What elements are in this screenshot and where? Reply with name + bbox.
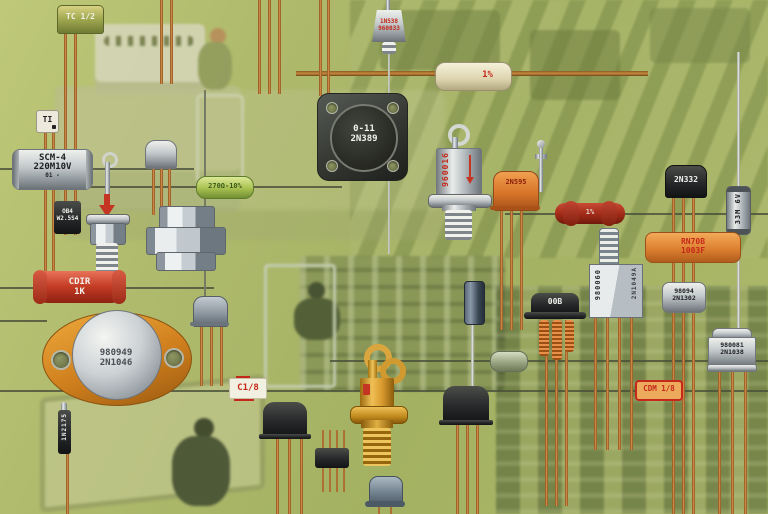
lead [630, 314, 633, 450]
stud-rectifier-left [84, 150, 130, 276]
lead [500, 210, 503, 330]
wire-wound-sleeve [539, 320, 549, 356]
rn70b-line2: 1003F [646, 246, 740, 255]
lead [520, 210, 523, 330]
contact-pin [533, 140, 549, 192]
cdir-resistor: CDIR 1K [33, 271, 126, 303]
diode-1n2175: 1N2175 [57, 402, 72, 454]
lead [170, 0, 173, 84]
lead [718, 368, 721, 514]
power-transistor-to3: 980949 2N1046 [42, 308, 192, 408]
can-2n1038-line2: 2N1038 [709, 349, 755, 356]
scm4-line3: 01 - [13, 173, 92, 179]
lead [220, 322, 223, 386]
lead [456, 424, 459, 514]
ob4-line2: W2.5S4 [54, 215, 81, 222]
rod [471, 320, 474, 390]
stud-diode-center-label: 960016 [441, 152, 450, 187]
lead [268, 0, 271, 94]
power-transistor-line1: 980949 [80, 348, 152, 358]
glass-diode-33m6v: 33M 6V [726, 186, 751, 235]
lead [378, 506, 380, 514]
transistor-2n332-label: 2N332 [666, 175, 706, 184]
square-transistor-line2: 2N389 [332, 134, 396, 144]
lead [327, 0, 330, 96]
lead [466, 424, 469, 514]
orange-transistor-brim [490, 206, 540, 210]
diode-1n2175-label: 1N2175 [61, 413, 68, 441]
tc-can-transistor: TC 1/2 [57, 5, 104, 34]
stud-diode-1n538: 1N538 960033 [370, 0, 408, 56]
rn70b-line1: RN70B [646, 237, 740, 246]
green-resistor-label: 270Ω-10% [197, 182, 253, 190]
can-transistor-2n1038: 980081 2N1038 [707, 328, 755, 372]
lead [200, 322, 203, 386]
lead [744, 368, 747, 514]
stud-diode-960016: 960016 [426, 124, 492, 240]
lead [300, 436, 303, 514]
metal-cube-right-label: 2N1049A [631, 267, 638, 299]
stud-diode-top-line2: 960033 [372, 25, 406, 32]
axial-component [490, 351, 528, 372]
lead [594, 314, 597, 450]
hex-nut-stack [146, 206, 226, 270]
label-cdm18: CDM 1/8 [635, 380, 683, 401]
lead [476, 424, 479, 514]
top-hat-transistor-00b: 00B [531, 293, 579, 314]
mounting-hole [164, 348, 184, 368]
lead [390, 506, 392, 514]
gray-transistor-brim [365, 501, 405, 507]
cream-precision-resistor: 1% [435, 62, 512, 91]
lead [618, 314, 621, 450]
square-transistor-2n389: 0-11 2N389 [317, 93, 408, 181]
lead [329, 466, 331, 492]
wire [0, 320, 47, 322]
lead [329, 430, 331, 450]
orange-transistor-label: 2N595 [494, 178, 538, 186]
ob4-line1: OB4 [54, 208, 81, 215]
wire-wound-sleeve [552, 320, 562, 360]
lead [336, 430, 338, 450]
lead [288, 436, 291, 514]
top-hat-brim [524, 312, 586, 319]
transistor-2n1302: 98094 2N1302 [662, 282, 706, 313]
wire [124, 287, 214, 289]
lead [319, 0, 322, 96]
black-can-transistor [443, 386, 489, 424]
cream-resistor-label: 1% [436, 70, 511, 80]
power-transistor-line2: 2N1046 [80, 358, 152, 368]
rod [737, 52, 740, 188]
metal-cube-transistor: 980060 2N1049A [589, 264, 643, 318]
label-c18-text: C1/8 [230, 383, 266, 393]
gray-can-brim [190, 322, 229, 326]
lead [731, 368, 734, 514]
lead [66, 450, 69, 514]
scm4-capacitor: SCM-4 220M10V 01 - [12, 149, 93, 190]
ti-label: TI [37, 116, 58, 124]
transistor-2n332: 2N332 [665, 165, 707, 198]
lead [278, 0, 281, 94]
black-can-brim [439, 420, 493, 425]
lead [210, 322, 213, 386]
label-cdm18-text: CDM 1/8 [637, 384, 681, 393]
lead [606, 314, 609, 450]
black-can-brim [259, 434, 311, 439]
tc-can-label: TC 1/2 [58, 12, 103, 21]
lead [160, 0, 163, 84]
stud-diode-top-line1: 1N538 [372, 18, 406, 25]
square-transistor-line1: 0-11 [332, 124, 396, 134]
lead [343, 430, 345, 450]
transistor-2n1302-line2: 2N1302 [663, 295, 705, 302]
lead [336, 466, 338, 492]
lead [322, 430, 324, 450]
red-resistor-right: 1% [555, 203, 625, 224]
top-hat-label: 00B [531, 297, 579, 306]
lead [322, 466, 324, 492]
rn70b-resistor: RN70B 1003F [645, 232, 741, 263]
component-collage-illustration: TC 1/2 TI SCM-4 220M10V 01 - OB4 W2.5S4 … [0, 0, 768, 514]
dark-vertical-component [464, 281, 485, 325]
draftsman-figure [194, 418, 214, 438]
red-resistor-right-label: 1% [555, 208, 625, 216]
gold-stud-diode [348, 344, 408, 468]
lead [510, 210, 513, 330]
lead [276, 436, 279, 514]
lead [343, 466, 345, 492]
ti-component: TI [36, 110, 59, 133]
black-can-transistor [263, 402, 307, 438]
flat-pack-component [315, 448, 349, 468]
ob4-component: OB4 W2.5S4 [54, 201, 81, 234]
glass-diode-label: 33M 6V [734, 193, 742, 224]
metal-cube-left-label: 980060 [594, 269, 602, 300]
label-c18: C1/8 [229, 378, 267, 399]
wire-wound-sleeve [565, 320, 574, 352]
small-can-transistor [145, 140, 177, 169]
green-resistor: 270Ω-10% [196, 176, 254, 199]
lead [258, 0, 261, 94]
mounting-hole [51, 350, 71, 370]
red-arrow-marking [469, 155, 471, 179]
